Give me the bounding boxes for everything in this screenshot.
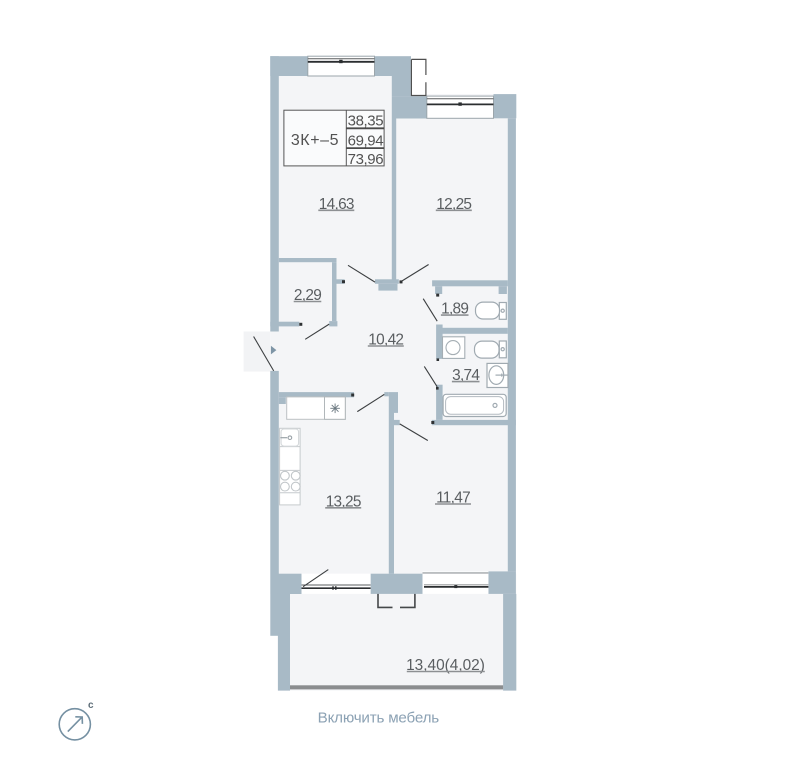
- svg-text:38,35: 38,35: [348, 113, 384, 130]
- svg-text:с: с: [88, 700, 94, 711]
- svg-text:69,94: 69,94: [348, 133, 384, 150]
- svg-text:73,96: 73,96: [348, 151, 384, 168]
- svg-text:Включить мебель: Включить мебель: [318, 710, 440, 727]
- svg-text:3К+–5: 3К+–5: [291, 132, 339, 149]
